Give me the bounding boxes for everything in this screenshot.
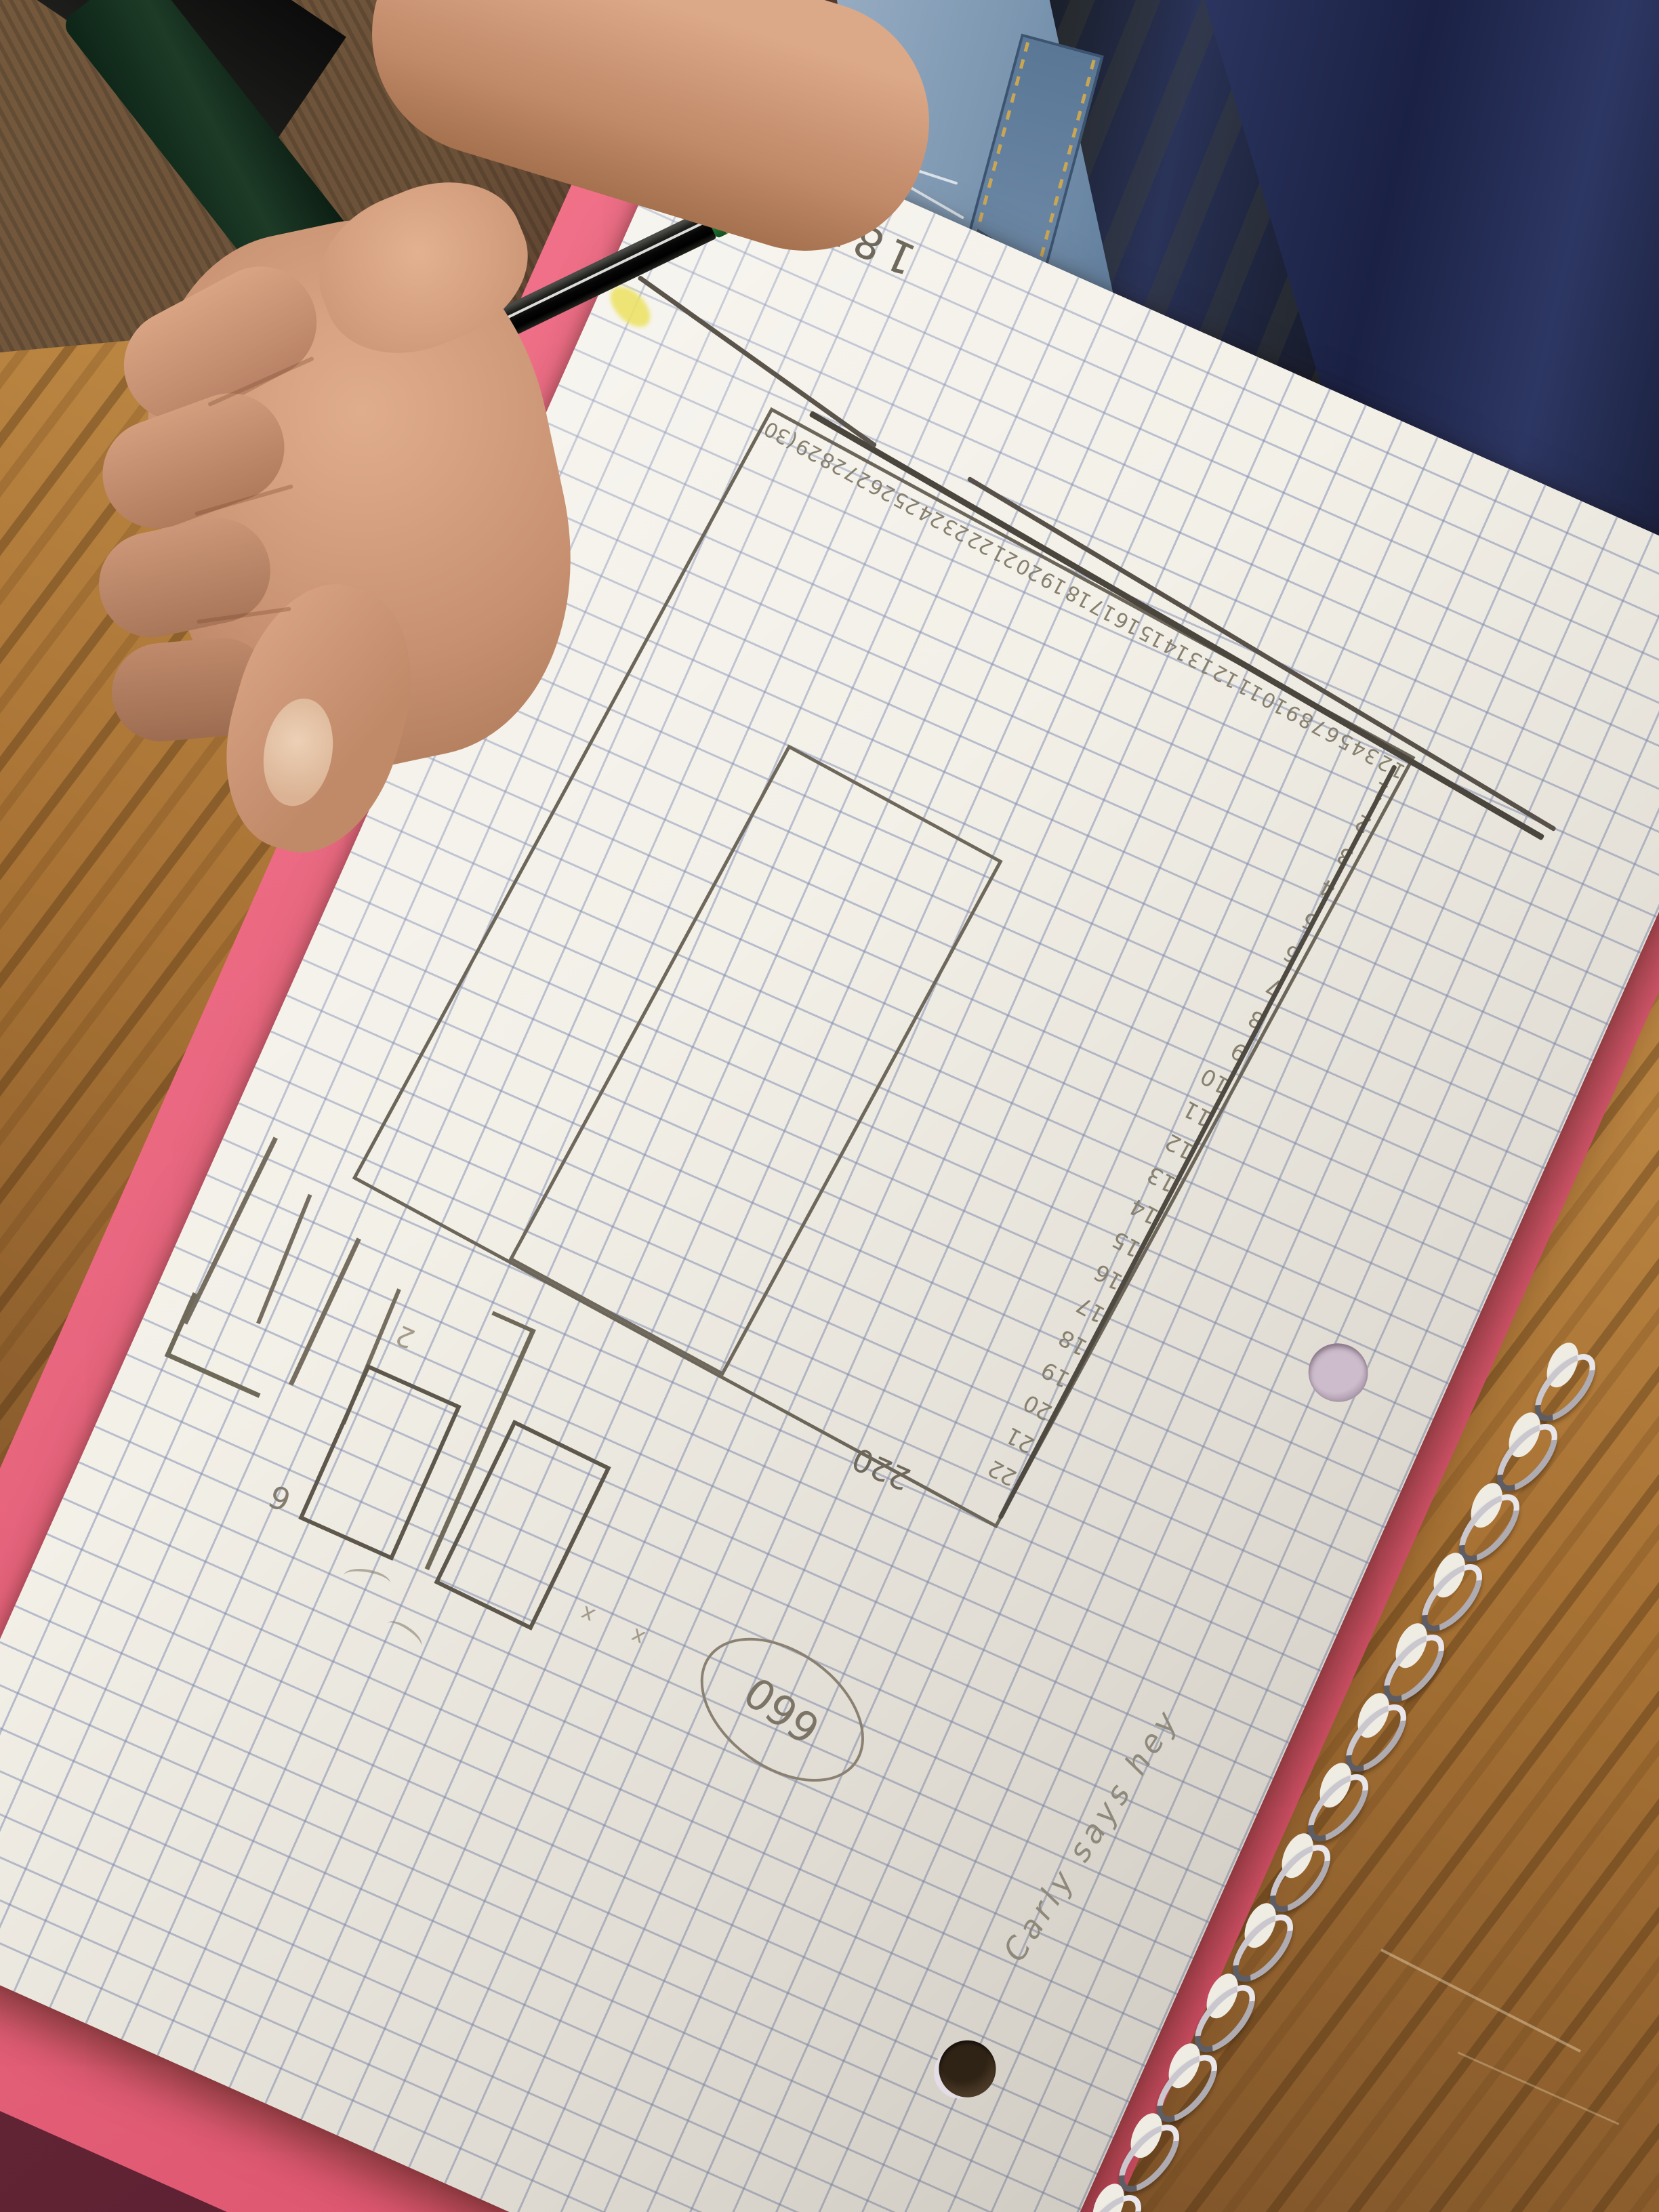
- circled-answer: 660: [737, 1669, 827, 1750]
- faint-scribble: [382, 1616, 426, 1654]
- pencil-number: 14: [1125, 1193, 1163, 1230]
- sketch-stroke: [256, 1194, 312, 1324]
- sketch-tall-rectangle: [509, 744, 1003, 1376]
- pencil-retrace-line: [967, 476, 1557, 832]
- sketch-corner: [165, 1292, 287, 1398]
- faint-digit: 2: [392, 1321, 419, 1353]
- faint-x-marks: x x: [561, 1595, 648, 1650]
- faint-scribble: [342, 1565, 392, 1594]
- circled-answer-ellipse: 660: [674, 1608, 891, 1811]
- punch-hole: [1299, 1334, 1377, 1411]
- sketch-stroke: [289, 1237, 361, 1386]
- punch-hole: [930, 2031, 1005, 2106]
- pencil-retrace-line: [808, 411, 1544, 841]
- pencil-overshoot-line: [637, 275, 877, 448]
- pencil-retrace-line: [998, 764, 1397, 1519]
- small-rect-label: 6: [264, 1477, 297, 1519]
- top-edge-numbers: (302928272625242322212019181716151413121…: [760, 416, 1410, 783]
- photo-canvas: 183 (30292827262524232221201918171615141…: [0, 0, 1659, 2212]
